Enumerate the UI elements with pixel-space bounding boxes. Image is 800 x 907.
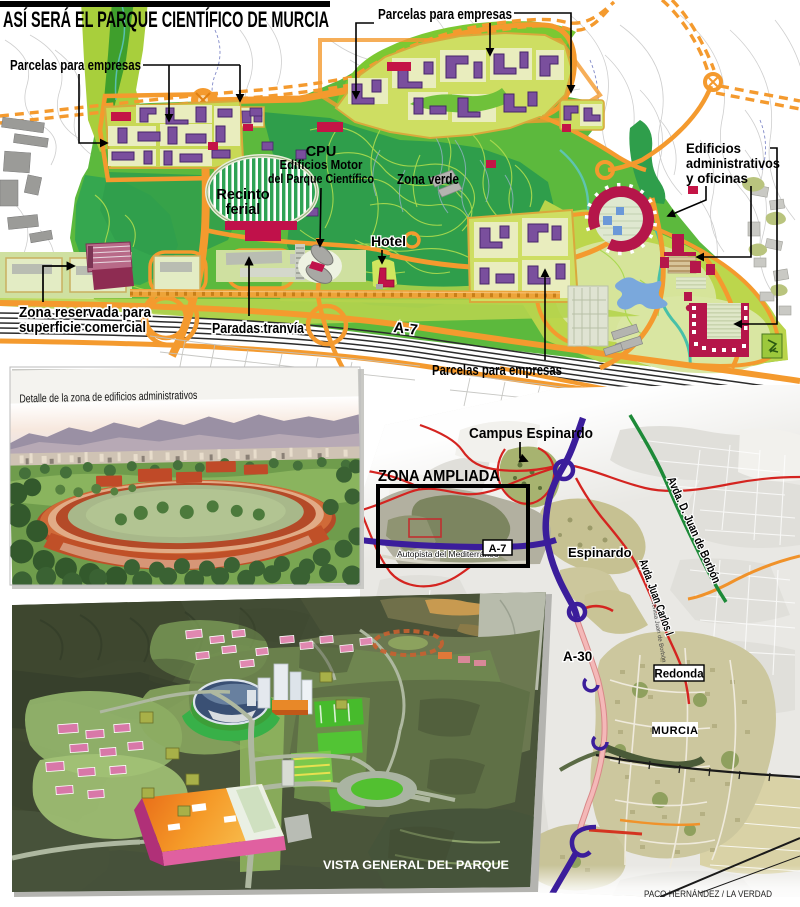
- svg-text:Campus Espinardo: Campus Espinardo: [469, 426, 593, 442]
- svg-text:Redonda: Redonda: [654, 669, 704, 681]
- svg-text:Parcelas para empresas: Parcelas para empresas: [432, 362, 562, 379]
- svg-text:ferial: ferial: [226, 202, 261, 218]
- svg-text:Paradas tranvía: Paradas tranvía: [212, 321, 305, 337]
- svg-text:A-30: A-30: [563, 649, 592, 664]
- svg-text:del Parque Científico: del Parque Científico: [268, 172, 374, 186]
- svg-text:PACO HERNÁNDEZ / LA VERDAD: PACO HERNÁNDEZ / LA VERDAD: [644, 889, 772, 900]
- svg-text:Recinto: Recinto: [216, 187, 269, 203]
- svg-text:Edificios Motor: Edificios Motor: [280, 158, 363, 172]
- svg-text:superficie comercial: superficie comercial: [19, 319, 146, 336]
- svg-text:ASÍ SERÁ EL PARQUE CIENTÍFICO: ASÍ SERÁ EL PARQUE CIENTÍFICO DE MURCIA: [3, 7, 329, 32]
- svg-text:ZONA AMPLIADA: ZONA AMPLIADA: [378, 468, 500, 485]
- svg-text:Hotel: Hotel: [371, 233, 406, 249]
- svg-text:Parcelas para empresas: Parcelas para empresas: [378, 6, 512, 23]
- svg-text:A-7: A-7: [489, 543, 507, 555]
- svg-text:Parcelas para empresas: Parcelas para empresas: [10, 57, 141, 74]
- svg-text:administrativos: administrativos: [686, 156, 780, 171]
- svg-text:A-7: A-7: [393, 319, 419, 339]
- svg-text:y oficinas: y oficinas: [686, 171, 748, 186]
- svg-text:Edificios: Edificios: [686, 141, 741, 156]
- svg-text:VISTA GENERAL DEL PARQUE: VISTA GENERAL DEL PARQUE: [323, 858, 509, 872]
- svg-text:Espinardo: Espinardo: [568, 545, 632, 560]
- svg-text:MURCIA: MURCIA: [652, 725, 699, 737]
- svg-text:Zona verde: Zona verde: [397, 172, 459, 188]
